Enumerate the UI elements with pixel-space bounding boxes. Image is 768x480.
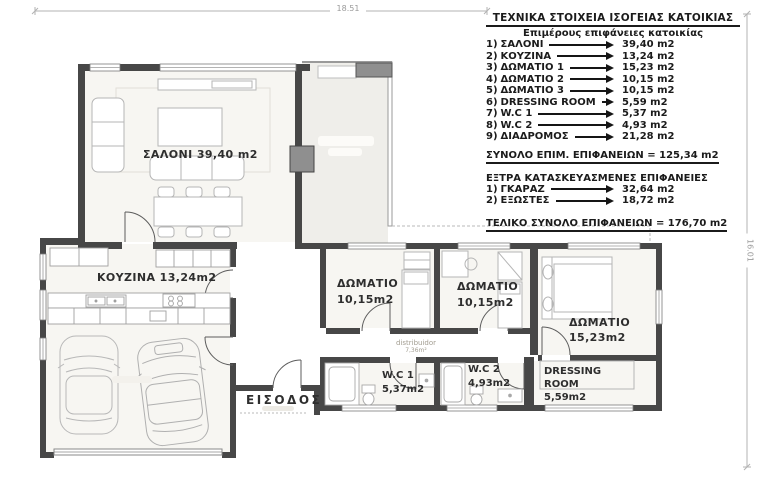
floor-plan-canvas: ΣΑΛΟΝΙ 39,40 m2 ΚΟΥΖΙΝΑ 13,24m2 ΔΩΜΑΤΙΟ … [0, 0, 768, 480]
legend-item-row: 2) ΕΞΩΣΤΕΣ 18,72 m2 [486, 195, 740, 207]
room-label-kitchen: ΚΟΥΖΙΝΑ 13,24m2 [97, 271, 216, 284]
faint-label-garage [112, 376, 152, 383]
legend-panel: ΤΕΧΝΙΚΑ ΣΤΟΙΧΕΙΑ ΙΣΟΓΕΙΑΣ ΚΑΤΟΙΚΙΑΣ Επιμ… [486, 12, 740, 232]
legend-item-row: 3) ΔΩΜΑΤΙΟ 1 15,23 m2 [486, 62, 740, 74]
room-label-corridor: distribuidor 7,36m² [366, 339, 466, 355]
garage-door [54, 449, 222, 455]
legend-subtotal: ΣΥΝΟΛΟ ΕΠΙΜ. ΕΠΙΦΑΝΕΙΩΝ = 125,34 m2 [486, 150, 719, 164]
arrow-icon [538, 110, 618, 118]
arrow-icon [575, 133, 618, 141]
arrow-icon [602, 98, 618, 106]
room-label-dressing: DRESSING ROOM 5,59m2 [544, 365, 601, 404]
arrow-icon [551, 185, 618, 193]
terrace [302, 62, 392, 243]
legend-subtitle: Επιμέρους επιφάνειες κατοικίας [486, 28, 740, 39]
room-label-bedroom-1: ΔΩΜΑΤΙΟ 15,23m2 [569, 315, 630, 345]
arrow-icon [570, 75, 618, 83]
legend-extra-title: ΕΞΤΡΑ ΚΑΤΑΣΚΕΥΑΣΜΕΝΕΣ ΕΠΙΦΑΝΕΙΕΣ [486, 173, 740, 184]
legend-item-row: 4) ΔΩΜΑΤΙΟ 2 10,15 m2 [486, 74, 740, 86]
legend-item-row: 1) ΓΚΑΡΑΖ 32,64 m2 [486, 184, 740, 196]
legend-grand-total: ΤΕΛΙΚΟ ΣΥΝΟΛΟ ΕΠΙΦΑΝΕΙΩΝ = 176,70 m2 [486, 218, 727, 232]
room-label-living: ΣΑΛΟΝΙ 39,40 m2 [143, 148, 258, 161]
arrow-icon [549, 41, 618, 49]
legend-title: ΤΕΧΝΙΚΑ ΣΤΟΙΧΕΙΑ ΙΣΟΓΕΙΑΣ ΚΑΤΟΙΚΙΑΣ [486, 12, 740, 27]
room-label-wc2: W.C 2 4,93m2 [468, 363, 510, 391]
room-label-bedroom-2: ΔΩΜΑΤΙΟ 10,15m2 [337, 276, 398, 308]
chimney [290, 146, 314, 172]
arrow-icon [557, 52, 618, 60]
legend-item-row: 7) W.C 1 5,37 m2 [486, 108, 740, 120]
room-label-wc1: W.C 1 5,37m2 [382, 369, 424, 397]
legend-item-row: 6) DRESSING ROOM 5,59 m2 [486, 97, 740, 109]
arrow-icon [556, 197, 619, 205]
legend-item-row: 2) ΚΟΥΖΙΝΑ 13,24 m2 [486, 51, 740, 63]
arrow-icon [538, 121, 618, 129]
legend-item-row: 1) ΣΑΛΟΝΙ 39,40 m2 [486, 39, 740, 51]
dimension-top-label: 18.51 [330, 4, 366, 13]
arrow-icon [570, 87, 618, 95]
room-label-bedroom-3: ΔΩΜΑΤΙΟ 10,15m2 [457, 279, 518, 311]
dimension-right-label: 16.01 [746, 234, 755, 268]
legend-item-row: 5) ΔΩΜΑΤΙΟ 3 10,15 m2 [486, 85, 740, 97]
arrow-icon [570, 64, 618, 72]
legend-item-row: 8) W.C 2 4,93 m2 [486, 120, 740, 132]
legend-item-row: 9) ΔΙΑΔΡΟΜΟΣ 21,28 m2 [486, 131, 740, 143]
room-label-entrance: ΕΙΣΟΔΟΣ [246, 393, 322, 407]
